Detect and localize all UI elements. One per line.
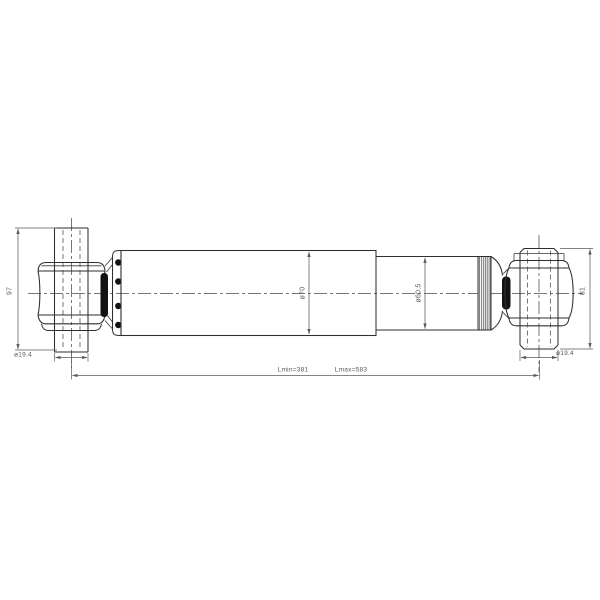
dim-left-pin-diameter: ø19.4 [14, 352, 88, 362]
dim-label-right-pin-diameter: ø19.4 [556, 350, 574, 357]
knurl-band [478, 257, 491, 331]
body-end-cap [113, 251, 122, 336]
left-stem-solid [101, 273, 109, 317]
dim-label-right-pin-length: 81 [580, 287, 587, 295]
drawing-canvas: 97 ø19.4 ø70 ø60.5 81 ø19.4 Lmin=381 Lma… [0, 0, 600, 600]
left-bushing [38, 258, 113, 331]
dim-right-pin-diameter: ø19.4 [520, 350, 574, 361]
dim-label-length-max: Lmax=583 [335, 367, 368, 374]
dim-label-left-pin-diameter: ø19.4 [14, 352, 32, 359]
dim-label-body-diameter: ø70 [300, 287, 307, 300]
dim-body-diameter: ø70 [300, 252, 310, 334]
right-stem-solid [502, 277, 511, 310]
dim-label-length-min: Lmin=381 [278, 367, 309, 374]
dim-label-inner-tube-diameter: ø60.5 [416, 284, 423, 303]
outer-tube [121, 251, 376, 336]
dim-right-pin-length: 81 [560, 249, 593, 350]
technical-drawing: 97 ø19.4 ø70 ø60.5 81 ø19.4 Lmin=381 Lma… [0, 0, 600, 600]
dim-inner-tube-diameter: ø60.5 [416, 258, 426, 329]
dim-left-pin-length: 97 [7, 228, 58, 350]
dim-label-left-pin-length: 97 [7, 287, 14, 295]
dim-overall-length: Lmin=381 Lmax=583 [72, 360, 540, 380]
